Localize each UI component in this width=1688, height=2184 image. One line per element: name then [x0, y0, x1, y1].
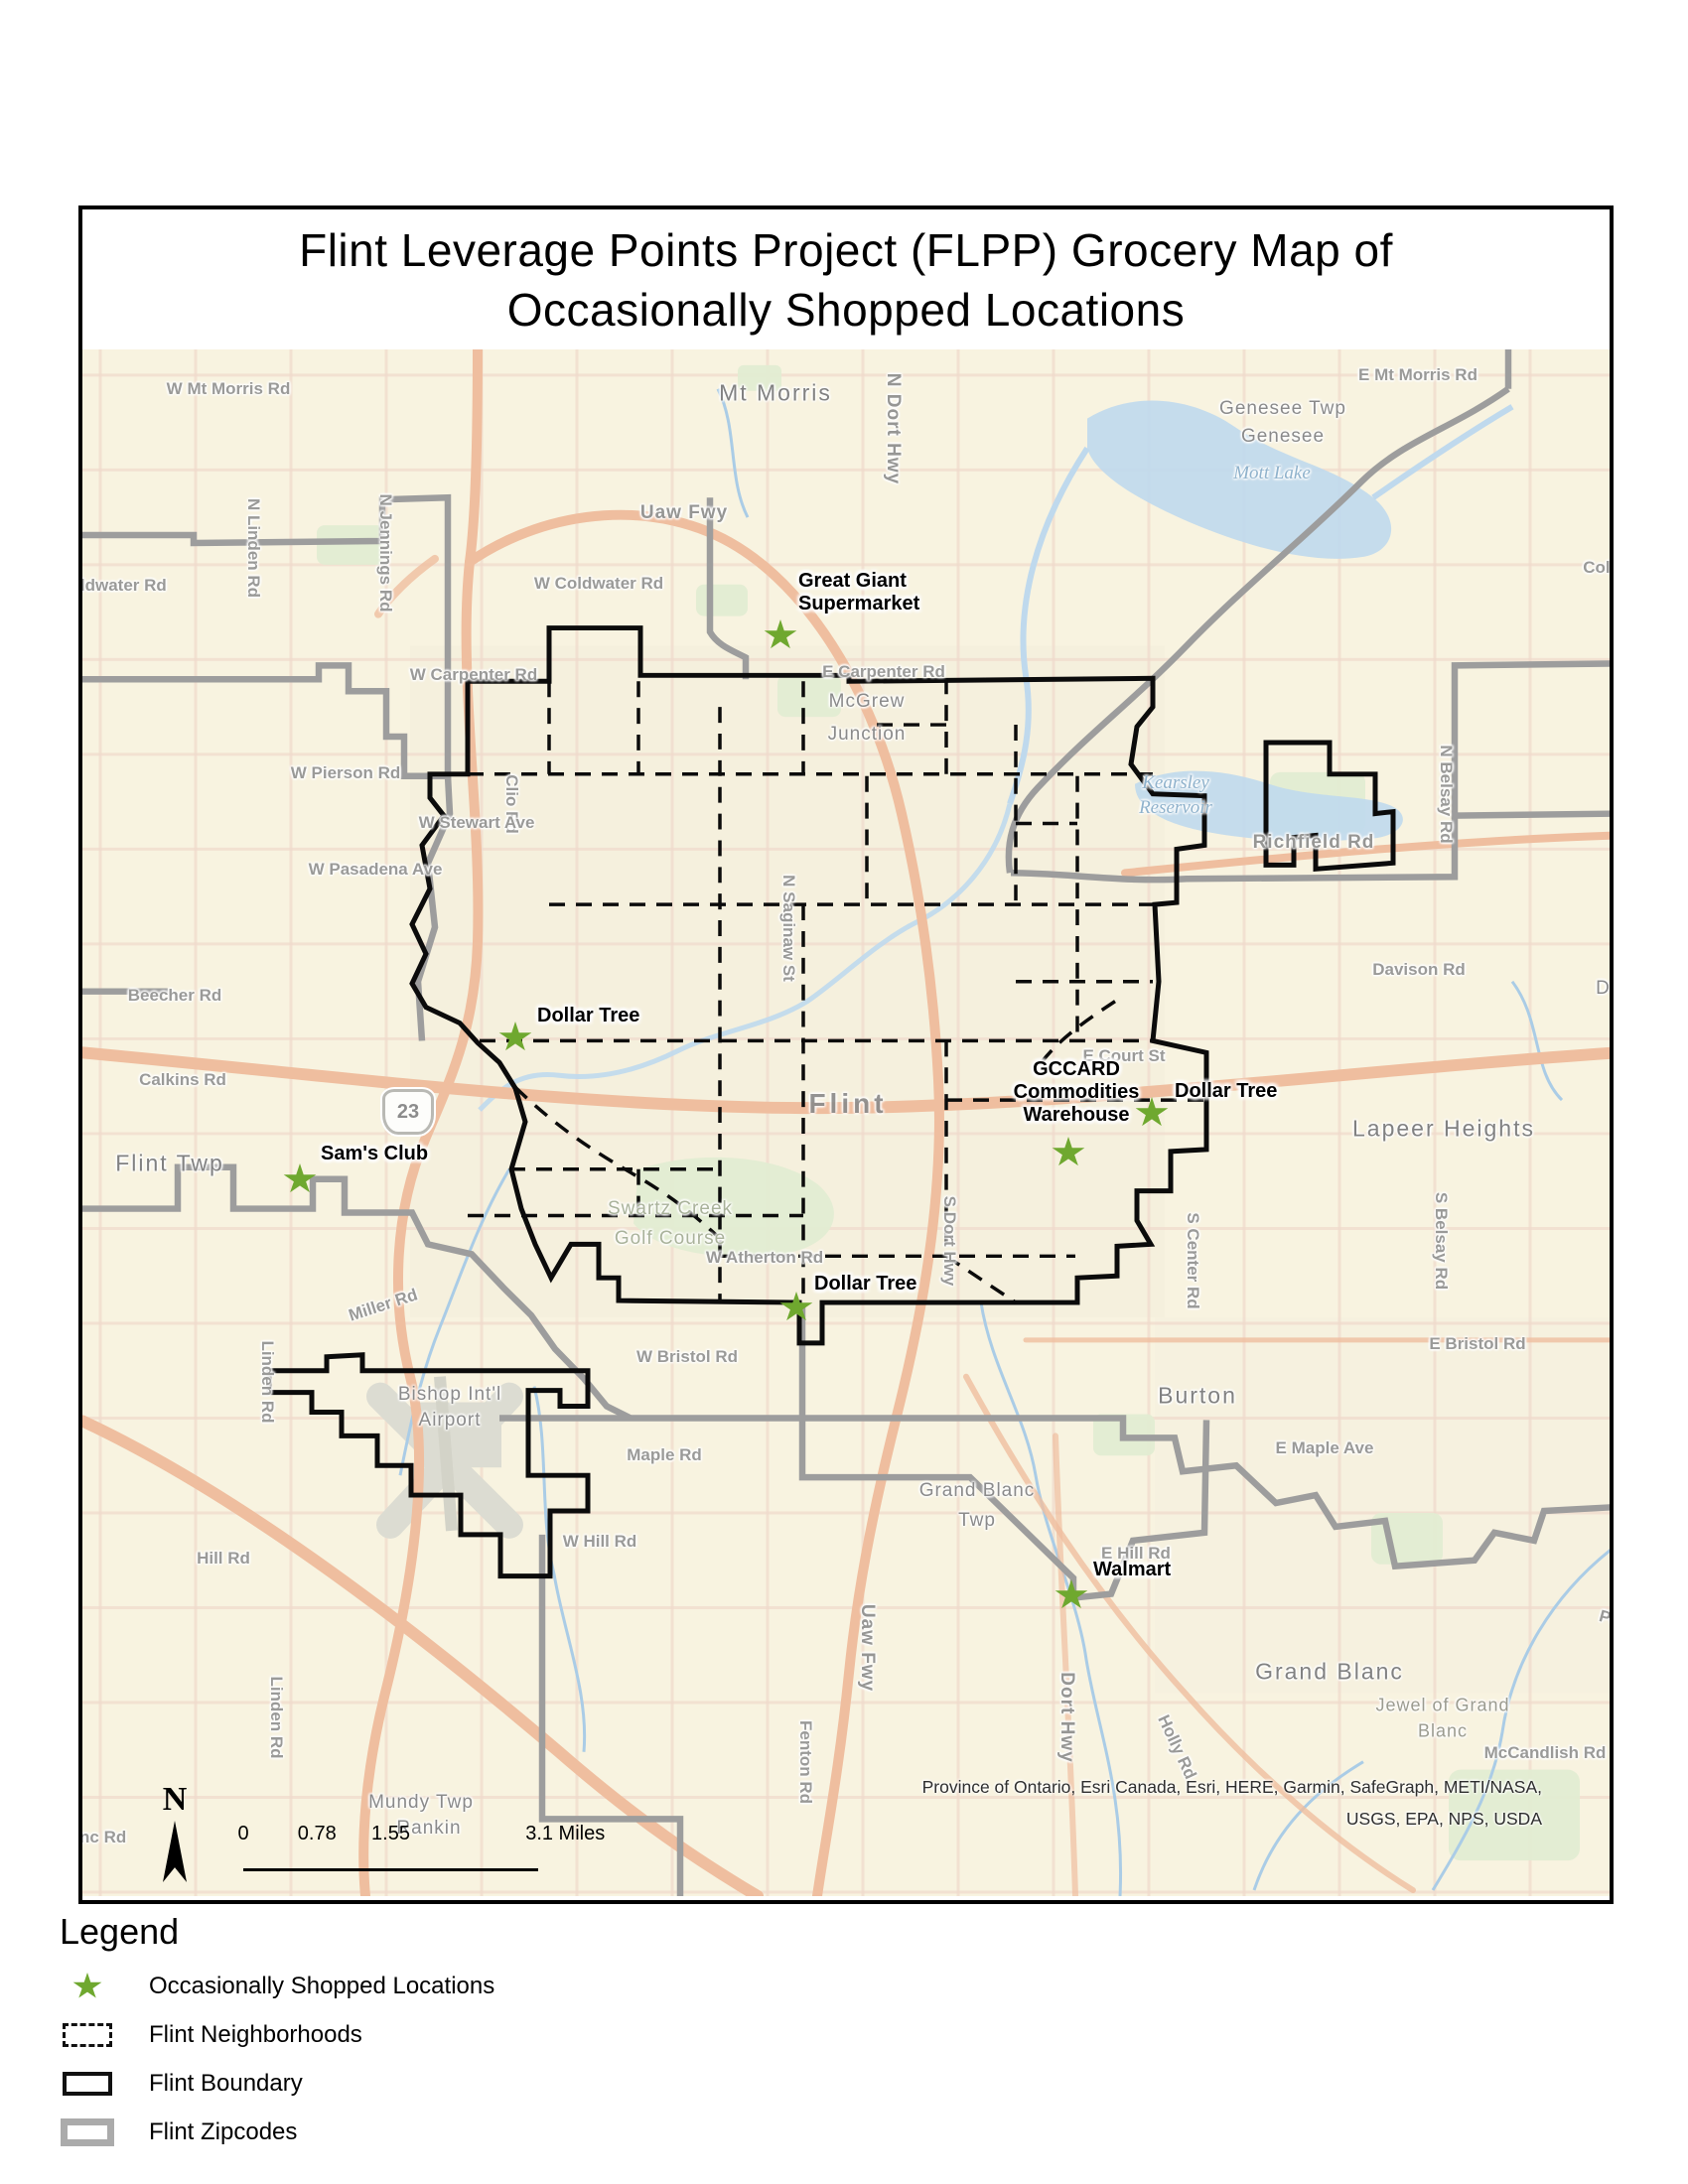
dollar-tree-south-label: Dollar Tree: [814, 1273, 916, 1296]
scale-label-0: 0: [237, 1823, 248, 1845]
legend-label: Flint Neighborhoods: [149, 2021, 362, 2049]
us-23-shield: 23: [382, 1089, 434, 1135]
legend-star-icon: [72, 1973, 102, 2000]
great-giant-supermarket-label: Great Giant Supermarket: [798, 570, 919, 615]
legend-item-shopped-locations: Occasionally Shopped Locations: [60, 1971, 755, 2002]
page: Flint Leverage Points Project (FLPP) Gro…: [0, 0, 1688, 2184]
legend-heading: Legend: [60, 1911, 755, 1953]
legend-label: Flint Zipcodes: [149, 2118, 297, 2146]
map-title-line-1: Flint Leverage Points Project (FLPP) Gro…: [299, 220, 1393, 280]
north-arrow: N: [155, 1781, 195, 1882]
map-frame: Flint Leverage Points Project (FLPP) Gro…: [78, 205, 1614, 1904]
scale-bar: 0 0.78 1.55 3.1 Miles: [243, 1823, 538, 1868]
walmart-label: Walmart: [1093, 1559, 1171, 1581]
legend: Legend Occasionally Shopped Locations Fl…: [60, 1911, 755, 2165]
scale-label-1: 0.78: [298, 1823, 337, 1845]
north-arrow-icon: [155, 1821, 195, 1882]
legend-gray-box-icon: [61, 2118, 114, 2146]
legend-label: Flint Boundary: [149, 2070, 303, 2098]
gccard-commodities-warehouse-label: GCCARD Commodities Warehouse: [997, 1058, 1156, 1127]
sams-club-label: Sam's Club: [321, 1143, 428, 1165]
attribution-line-2: USGS, EPA, NPS, USDA: [922, 1803, 1542, 1835]
legend-item-neighborhoods: Flint Neighborhoods: [60, 2019, 755, 2051]
title-block: Flint Leverage Points Project (FLPP) Gro…: [82, 209, 1610, 349]
legend-dashed-box-icon: [63, 2023, 112, 2047]
legend-label: Occasionally Shopped Locations: [149, 1973, 494, 2000]
dollar-tree-west-label: Dollar Tree: [537, 1005, 639, 1027]
legend-item-boundary: Flint Boundary: [60, 2068, 755, 2100]
legend-item-zipcodes: Flint Zipcodes: [60, 2116, 755, 2148]
map-title-line-2: Occasionally Shopped Locations: [507, 280, 1185, 340]
dollar-tree-east-label: Dollar Tree: [1175, 1080, 1277, 1103]
map-canvas[interactable]: W Mt Morris RdMt MorrisE Mt Morris RdGen…: [82, 349, 1610, 1896]
north-label: N: [155, 1781, 195, 1819]
scale-bar-line: [243, 1850, 538, 1871]
scale-label-2: 1.55: [371, 1823, 410, 1845]
scale-label-3: 3.1 Miles: [525, 1823, 605, 1845]
attribution-line-1: Province of Ontario, Esri Canada, Esri, …: [922, 1771, 1542, 1803]
attribution: Province of Ontario, Esri Canada, Esri, …: [922, 1771, 1542, 1835]
legend-solid-box-icon: [63, 2072, 112, 2096]
